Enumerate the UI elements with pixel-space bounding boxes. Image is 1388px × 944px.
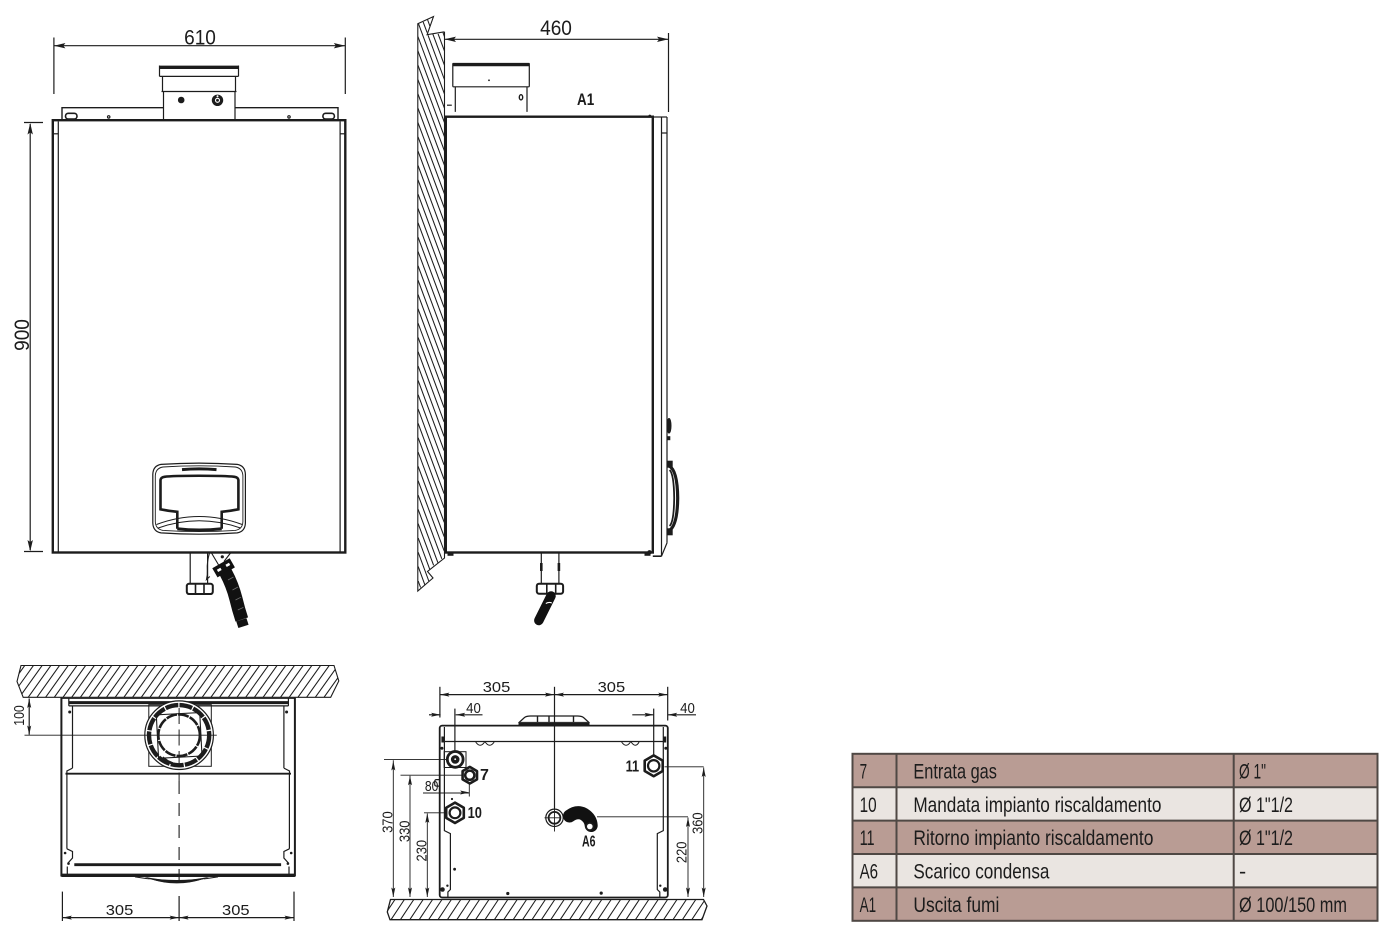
svg-text:Scarico condensa: Scarico condensa bbox=[913, 860, 1049, 884]
svg-text:Ø 1"1/2: Ø 1"1/2 bbox=[1239, 793, 1293, 817]
svg-text:A6: A6 bbox=[860, 860, 879, 884]
svg-text:Ø 1"1/2: Ø 1"1/2 bbox=[1239, 826, 1293, 850]
svg-text:Mandata impianto riscaldamento: Mandata impianto riscaldamento bbox=[913, 793, 1161, 817]
svg-text:Uscita fumi: Uscita fumi bbox=[913, 893, 999, 917]
svg-text:A1: A1 bbox=[860, 893, 877, 917]
svg-text:7: 7 bbox=[860, 759, 868, 783]
svg-text:Ø 100/150 mm: Ø 100/150 mm bbox=[1239, 893, 1347, 917]
svg-text:Ritorno impianto riscaldamento: Ritorno impianto riscaldamento bbox=[913, 826, 1153, 850]
svg-text:Entrata gas: Entrata gas bbox=[913, 759, 997, 783]
svg-text:11: 11 bbox=[860, 826, 875, 850]
svg-text:10: 10 bbox=[860, 793, 877, 817]
svg-text:Ø 1": Ø 1" bbox=[1239, 759, 1266, 783]
svg-text:-: - bbox=[1239, 860, 1246, 884]
